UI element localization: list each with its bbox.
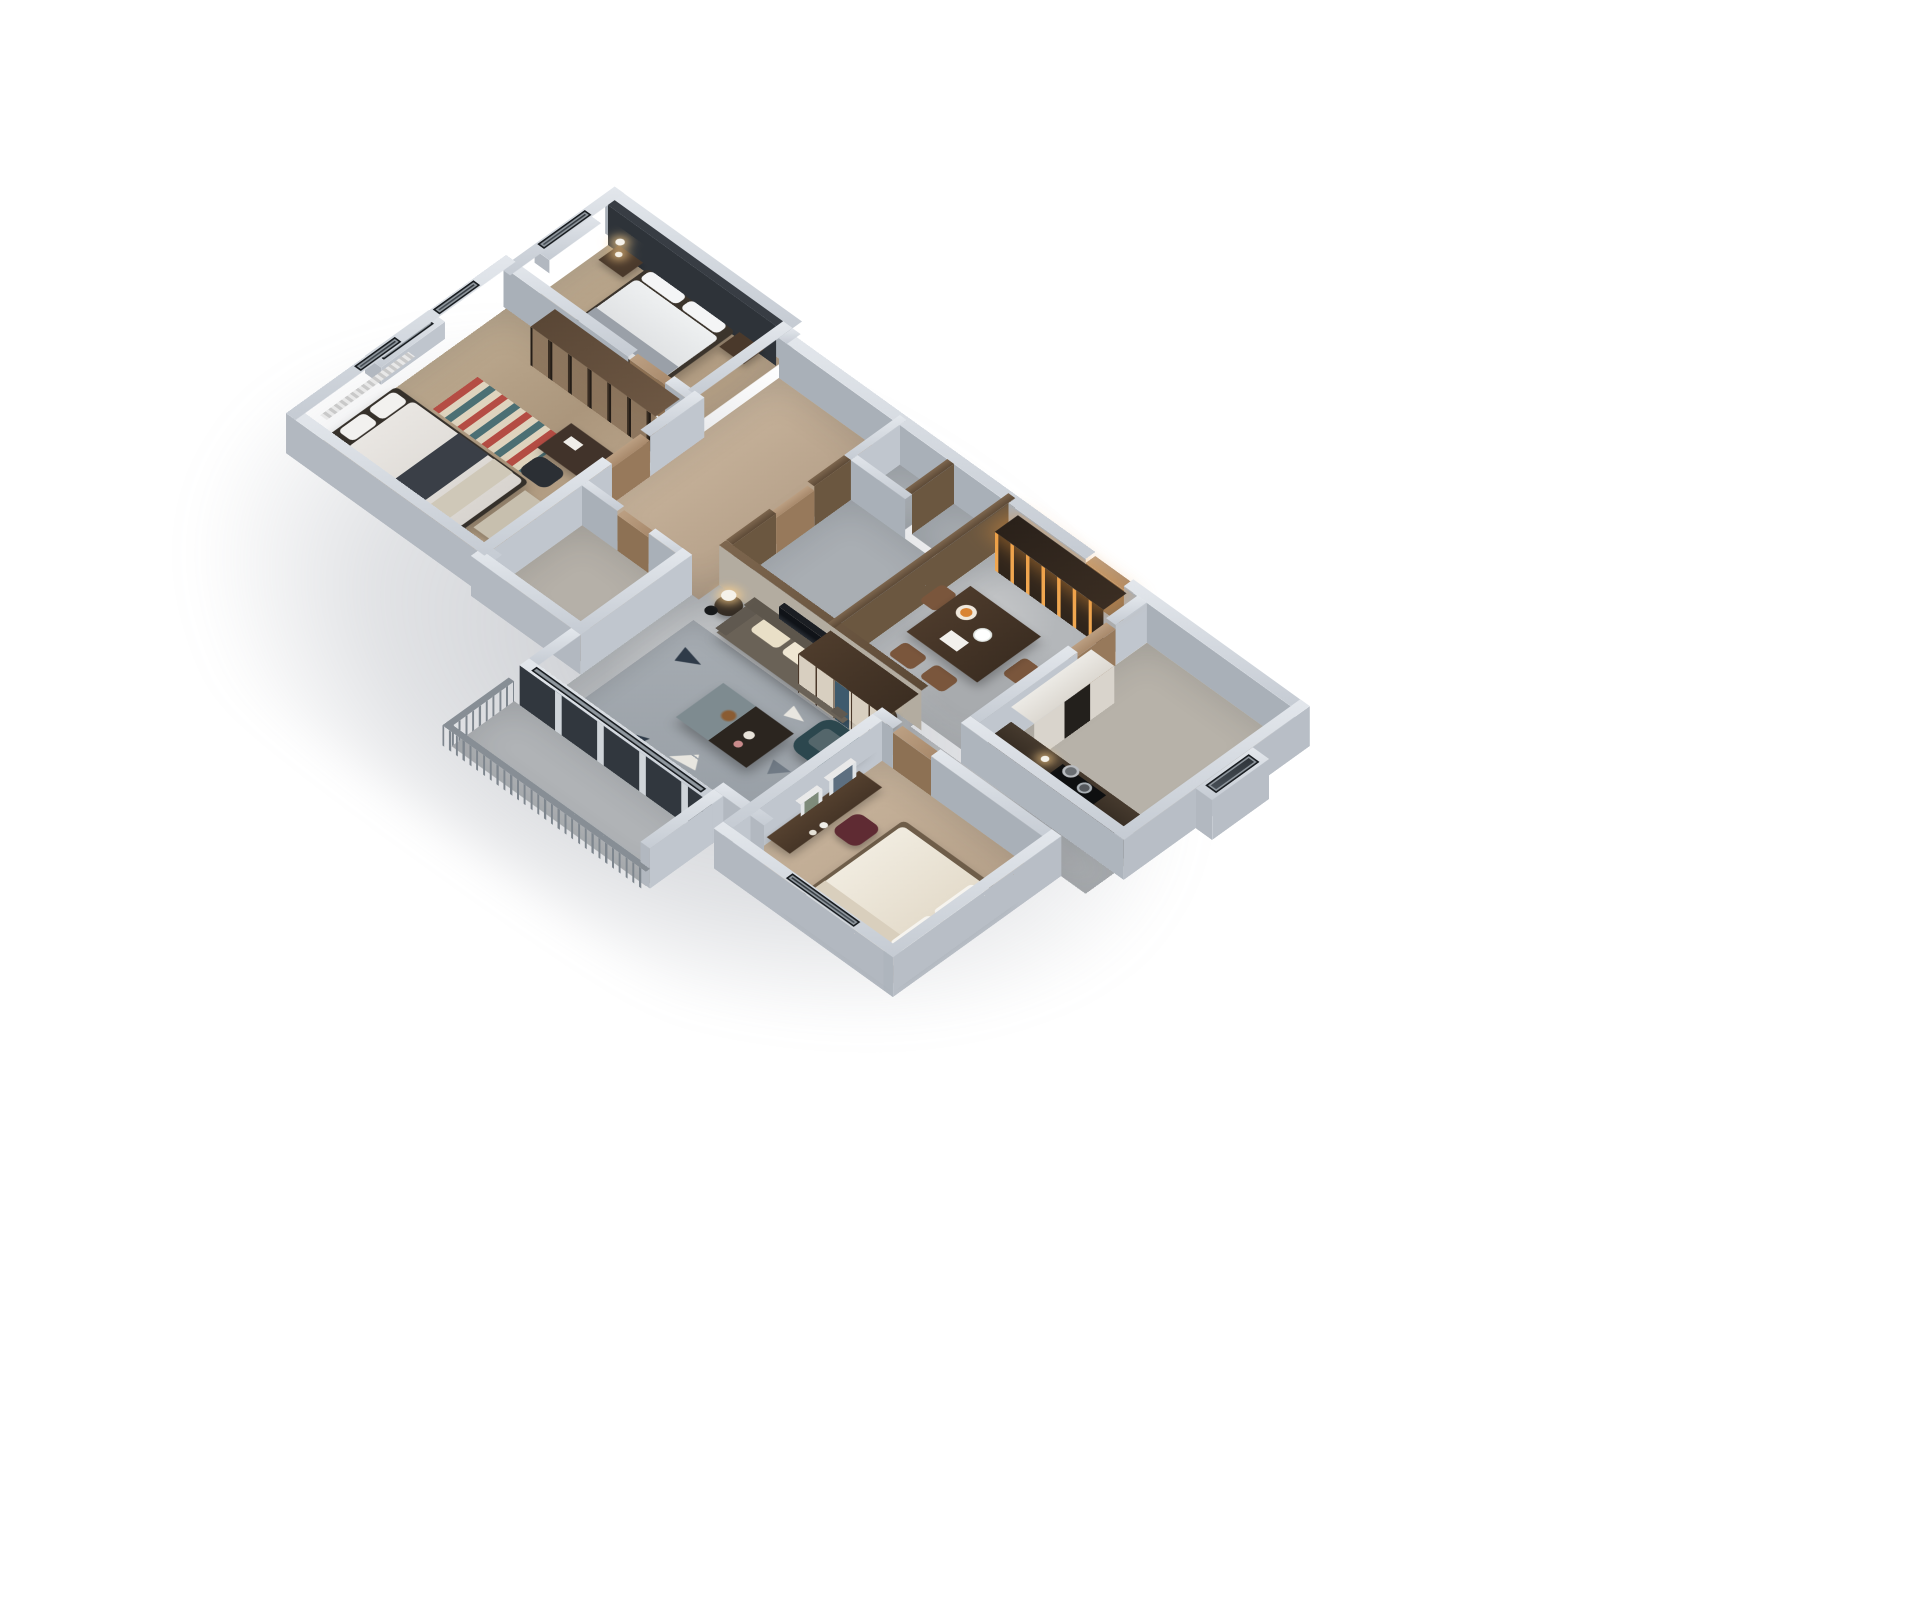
render-canvas: [0, 0, 1920, 1617]
